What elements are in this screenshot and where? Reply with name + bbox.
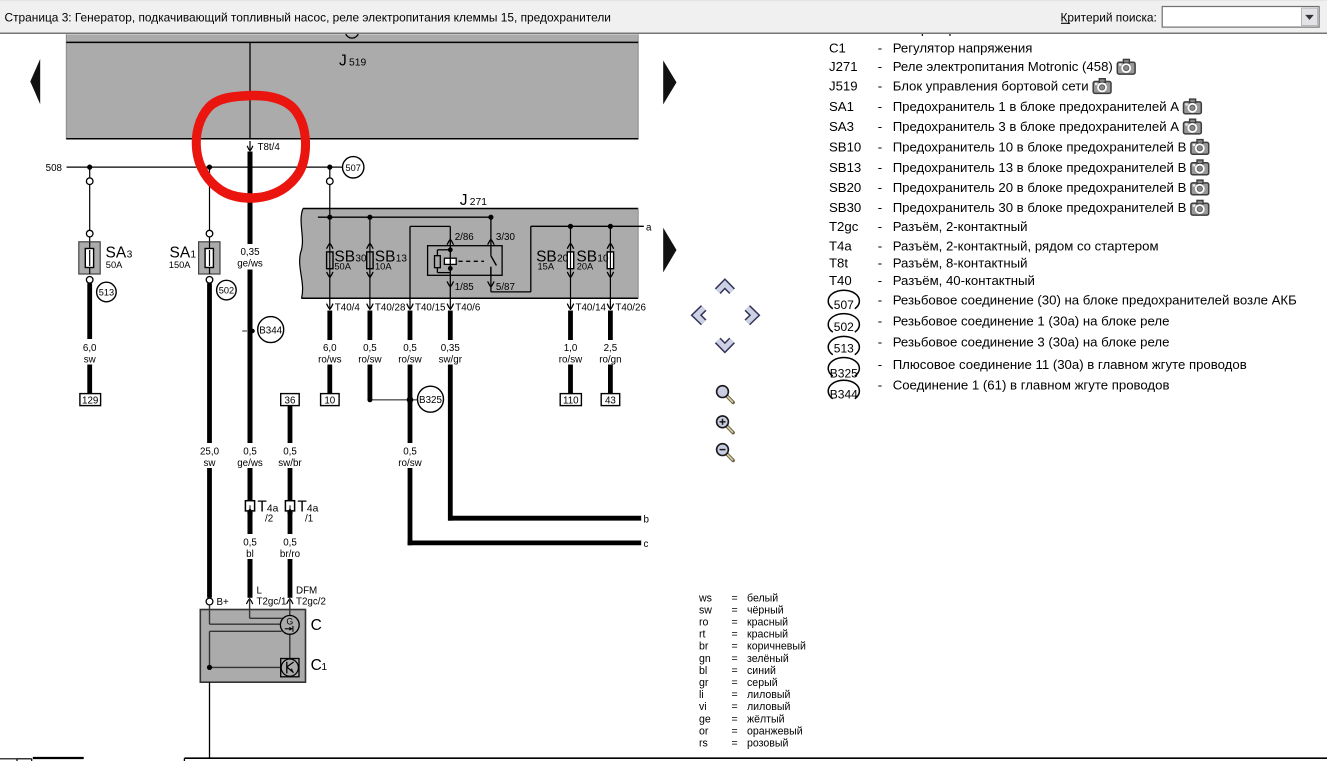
svg-text:519: 519: [349, 57, 366, 68]
svg-text:/2: /2: [265, 514, 273, 525]
svg-text:Предохранитель 10 в блоке пред: Предохранитель 10 в блоке предохранителе…: [893, 139, 1187, 154]
svg-text:T40/26: T40/26: [615, 303, 646, 314]
svg-text:SA1: SA1: [829, 99, 854, 114]
svg-text:Резьбовое соединение (30) на б: Резьбовое соединение (30) на блоке предо…: [893, 292, 1297, 307]
svg-text:B344: B344: [830, 387, 858, 401]
svg-text:=: =: [732, 738, 738, 750]
svg-text:0,5: 0,5: [363, 343, 377, 354]
svg-text:-: -: [878, 99, 882, 114]
svg-text:T2gc/1: T2gc/1: [257, 597, 287, 608]
svg-text:красный: красный: [747, 629, 788, 641]
svg-text:271: 271: [470, 197, 487, 208]
svg-text:sw/gr: sw/gr: [439, 355, 463, 366]
svg-text:-: -: [878, 292, 882, 307]
svg-text:розовый: розовый: [747, 738, 789, 750]
svg-text:ge/ws: ge/ws: [237, 259, 263, 270]
svg-text:-: -: [878, 139, 882, 154]
svg-text:T40: T40: [829, 273, 852, 288]
svg-text:502: 502: [219, 286, 234, 296]
svg-text:2/86: 2/86: [455, 232, 475, 243]
svg-text:br: br: [699, 641, 709, 653]
svg-text:лиловый: лиловый: [747, 701, 791, 713]
svg-text:Плюсовое соединение 11 (30а) в: Плюсовое соединение 11 (30а) в главном ж…: [893, 357, 1247, 372]
svg-text:T40/6: T40/6: [455, 303, 481, 314]
svg-text:1,0: 1,0: [564, 343, 578, 354]
svg-text:B344: B344: [259, 325, 282, 336]
svg-text:36: 36: [285, 395, 296, 406]
svg-text:C: C: [311, 657, 322, 674]
svg-text:513: 513: [99, 288, 114, 298]
svg-text:0,5: 0,5: [403, 343, 417, 354]
svg-text:rt: rt: [699, 629, 706, 641]
svg-text:rs: rs: [699, 738, 708, 750]
svg-text:Регулятор напряжения: Регулятор напряжения: [893, 40, 1033, 55]
svg-text:J519: J519: [829, 79, 858, 94]
svg-text:0,35: 0,35: [240, 247, 260, 258]
svg-text:502: 502: [834, 320, 854, 334]
svg-text:-: -: [878, 59, 882, 74]
svg-text:0,5: 0,5: [243, 446, 257, 457]
svg-text:-: -: [878, 40, 882, 55]
svg-text:T40/14: T40/14: [576, 303, 607, 314]
svg-text:6,0: 6,0: [323, 343, 337, 354]
svg-text:5/87: 5/87: [496, 282, 515, 293]
svg-text:красный: красный: [747, 617, 788, 629]
svg-text:sw: sw: [699, 604, 712, 616]
svg-text:1: 1: [190, 250, 196, 261]
svg-text:-: -: [878, 119, 882, 134]
svg-text:10A: 10A: [375, 262, 392, 272]
svg-text:507: 507: [834, 298, 854, 312]
svg-text:DFM: DFM: [296, 586, 317, 597]
svg-text:чёрный: чёрный: [747, 604, 784, 616]
svg-text:li: li: [699, 689, 704, 701]
svg-text:513: 513: [834, 342, 854, 356]
svg-text:J: J: [339, 52, 347, 69]
svg-text:=: =: [732, 641, 738, 653]
svg-text:Страница 3: Генератор, подкачи: Страница 3: Генератор, подкачивающий топ…: [5, 11, 611, 25]
svg-text:sw/br: sw/br: [278, 458, 302, 469]
svg-text:a: a: [646, 222, 652, 233]
svg-text:20A: 20A: [577, 262, 594, 272]
svg-text:SB20: SB20: [829, 180, 861, 195]
svg-text:G: G: [286, 616, 293, 626]
svg-text:=: =: [732, 677, 738, 689]
svg-text:0,5: 0,5: [283, 446, 297, 457]
svg-text:L: L: [257, 586, 263, 597]
svg-text:508: 508: [46, 163, 63, 174]
svg-text:T40/4: T40/4: [335, 303, 361, 314]
svg-text:SA3: SA3: [829, 119, 854, 134]
svg-text:Реле электропитания Motronic (: Реле электропитания Motronic (458): [893, 59, 1113, 74]
svg-text:ws: ws: [698, 592, 712, 604]
svg-text:43: 43: [605, 395, 616, 406]
svg-text:ro/sw: ro/sw: [398, 355, 422, 366]
svg-text:-: -: [878, 79, 882, 94]
svg-text:10: 10: [597, 254, 609, 265]
svg-text:C: C: [311, 617, 322, 634]
svg-text:bl: bl: [699, 665, 707, 677]
svg-text:50A: 50A: [334, 262, 351, 272]
svg-text:vi: vi: [699, 701, 707, 713]
svg-text:=: =: [732, 725, 738, 737]
svg-text:Разъём, 40-контактный: Разъём, 40-контактный: [893, 273, 1035, 288]
svg-text:серый: серый: [747, 677, 778, 689]
svg-text:15A: 15A: [538, 262, 555, 272]
svg-text:6,0: 6,0: [83, 343, 97, 354]
svg-text:ro/sw: ro/sw: [398, 458, 422, 469]
svg-text:0,5: 0,5: [243, 537, 257, 548]
svg-text:T40/28: T40/28: [375, 303, 406, 314]
svg-text:gr: gr: [699, 677, 709, 689]
svg-text:gn: gn: [699, 653, 711, 665]
svg-text:-: -: [878, 238, 882, 253]
svg-text:=: =: [732, 689, 738, 701]
svg-text:B325: B325: [830, 366, 858, 380]
svg-text:оранжевый: оранжевый: [747, 725, 803, 737]
svg-text:=: =: [732, 629, 738, 641]
svg-text:-: -: [878, 313, 882, 328]
svg-text:T2gc: T2gc: [829, 219, 859, 234]
svg-text:Предохранитель 1 в блоке предо: Предохранитель 1 в блоке предохранителей…: [893, 99, 1180, 114]
svg-text:129: 129: [82, 395, 98, 406]
svg-text:10: 10: [324, 395, 335, 406]
svg-text:b: b: [644, 515, 650, 526]
svg-text:3/30: 3/30: [496, 232, 516, 243]
svg-text:sw: sw: [84, 355, 97, 366]
svg-text:Соединение 1 (61) в главном жг: Соединение 1 (61) в главном жгуте провод…: [893, 377, 1170, 392]
svg-text:ge/ws: ge/ws: [237, 458, 263, 469]
svg-text:J: J: [460, 192, 468, 209]
svg-text:or: or: [699, 725, 709, 737]
svg-text:20: 20: [557, 254, 569, 265]
svg-text:Блок управления бортовой сети: Блок управления бортовой сети: [893, 79, 1089, 94]
svg-text:-: -: [878, 377, 882, 392]
svg-text:ge: ge: [699, 713, 711, 725]
svg-text:T40/15: T40/15: [415, 303, 446, 314]
svg-text:B325: B325: [419, 395, 442, 406]
svg-text:=: =: [732, 592, 738, 604]
svg-text:-: -: [878, 255, 882, 270]
svg-text:507: 507: [346, 163, 361, 173]
svg-text:Предохранитель 13 в блоке пред: Предохранитель 13 в блоке предохранителе…: [893, 160, 1187, 175]
svg-text:13: 13: [396, 254, 408, 265]
svg-text:0,35: 0,35: [441, 343, 461, 354]
svg-text:лиловый: лиловый: [747, 689, 791, 701]
svg-text:Предохранитель 20 в блоке пред: Предохранитель 20 в блоке предохранителе…: [893, 180, 1187, 195]
svg-text:ro: ro: [699, 617, 709, 629]
svg-text:B+: B+: [217, 597, 230, 608]
svg-text:25,0: 25,0: [200, 446, 220, 457]
svg-text:50A: 50A: [106, 260, 123, 270]
svg-text:1/85: 1/85: [455, 282, 475, 293]
svg-text:ro/gn: ro/gn: [599, 355, 621, 366]
svg-text:sw: sw: [204, 458, 217, 469]
svg-text:C1: C1: [829, 40, 846, 55]
svg-text:белый: белый: [747, 592, 778, 604]
svg-text:Разъём, 8-контактный: Разъём, 8-контактный: [893, 255, 1028, 270]
svg-text:2,5: 2,5: [604, 343, 618, 354]
svg-text:110: 110: [563, 395, 579, 406]
svg-text:Разъём, 2-контактный, рядом со: Разъём, 2-контактный, рядом со стартером: [893, 238, 1159, 253]
svg-text:T8t: T8t: [829, 255, 848, 270]
svg-text:-: -: [878, 219, 882, 234]
svg-text:коричневый: коричневый: [747, 641, 806, 653]
svg-text:0,5: 0,5: [403, 446, 417, 457]
svg-text:/1: /1: [305, 514, 313, 525]
svg-text:=: =: [732, 617, 738, 629]
svg-text:3: 3: [127, 250, 133, 261]
svg-text:Предохранитель 3 в блоке предо: Предохранитель 3 в блоке предохранителей…: [893, 119, 1180, 134]
svg-text:T2gc/2: T2gc/2: [296, 597, 326, 608]
svg-text:c: c: [644, 539, 649, 550]
svg-text:Резьбовое соединение 1 (30а) н: Резьбовое соединение 1 (30а) на блоке ре…: [893, 313, 1170, 328]
svg-text:синий: синий: [747, 665, 776, 677]
svg-text:=: =: [732, 653, 738, 665]
svg-text:Резьбовое соединение 3 (30а) н: Резьбовое соединение 3 (30а) на блоке ре…: [893, 334, 1170, 349]
svg-text:1: 1: [321, 662, 327, 673]
svg-text:-: -: [878, 200, 882, 215]
svg-text:SB10: SB10: [829, 139, 861, 154]
svg-text:зелёный: зелёный: [747, 653, 789, 665]
svg-text:ro/ws: ro/ws: [318, 355, 342, 366]
svg-text:br/ro: br/ro: [280, 549, 301, 560]
svg-text:0,5: 0,5: [283, 537, 297, 548]
svg-text:-: -: [878, 180, 882, 195]
svg-text:жёлтый: жёлтый: [747, 713, 785, 725]
svg-text:ro/sw: ro/sw: [559, 355, 583, 366]
svg-text:150A: 150A: [169, 260, 192, 270]
svg-text:=: =: [732, 604, 738, 616]
svg-text:=: =: [732, 701, 738, 713]
svg-text:T8t/4: T8t/4: [258, 142, 281, 153]
svg-text:SB13: SB13: [829, 160, 861, 175]
svg-text:bl: bl: [246, 549, 254, 560]
svg-text:Критерий поиска:: Критерий поиска:: [1061, 11, 1157, 25]
svg-text:-: -: [878, 160, 882, 175]
svg-text:-: -: [878, 273, 882, 288]
svg-text:SB30: SB30: [829, 200, 861, 215]
svg-text:=: =: [732, 713, 738, 725]
svg-text:-: -: [878, 357, 882, 372]
svg-text:J271: J271: [829, 59, 858, 74]
svg-text:Предохранитель 30 в блоке пред: Предохранитель 30 в блоке предохранителе…: [893, 200, 1187, 215]
svg-text:-: -: [878, 334, 882, 349]
svg-text:ro/sw: ro/sw: [358, 355, 382, 366]
svg-text:Разъём, 2-контактный: Разъём, 2-контактный: [893, 219, 1028, 234]
svg-text:T4a: T4a: [829, 238, 852, 253]
svg-text:30: 30: [355, 254, 367, 265]
svg-text:=: =: [732, 665, 738, 677]
